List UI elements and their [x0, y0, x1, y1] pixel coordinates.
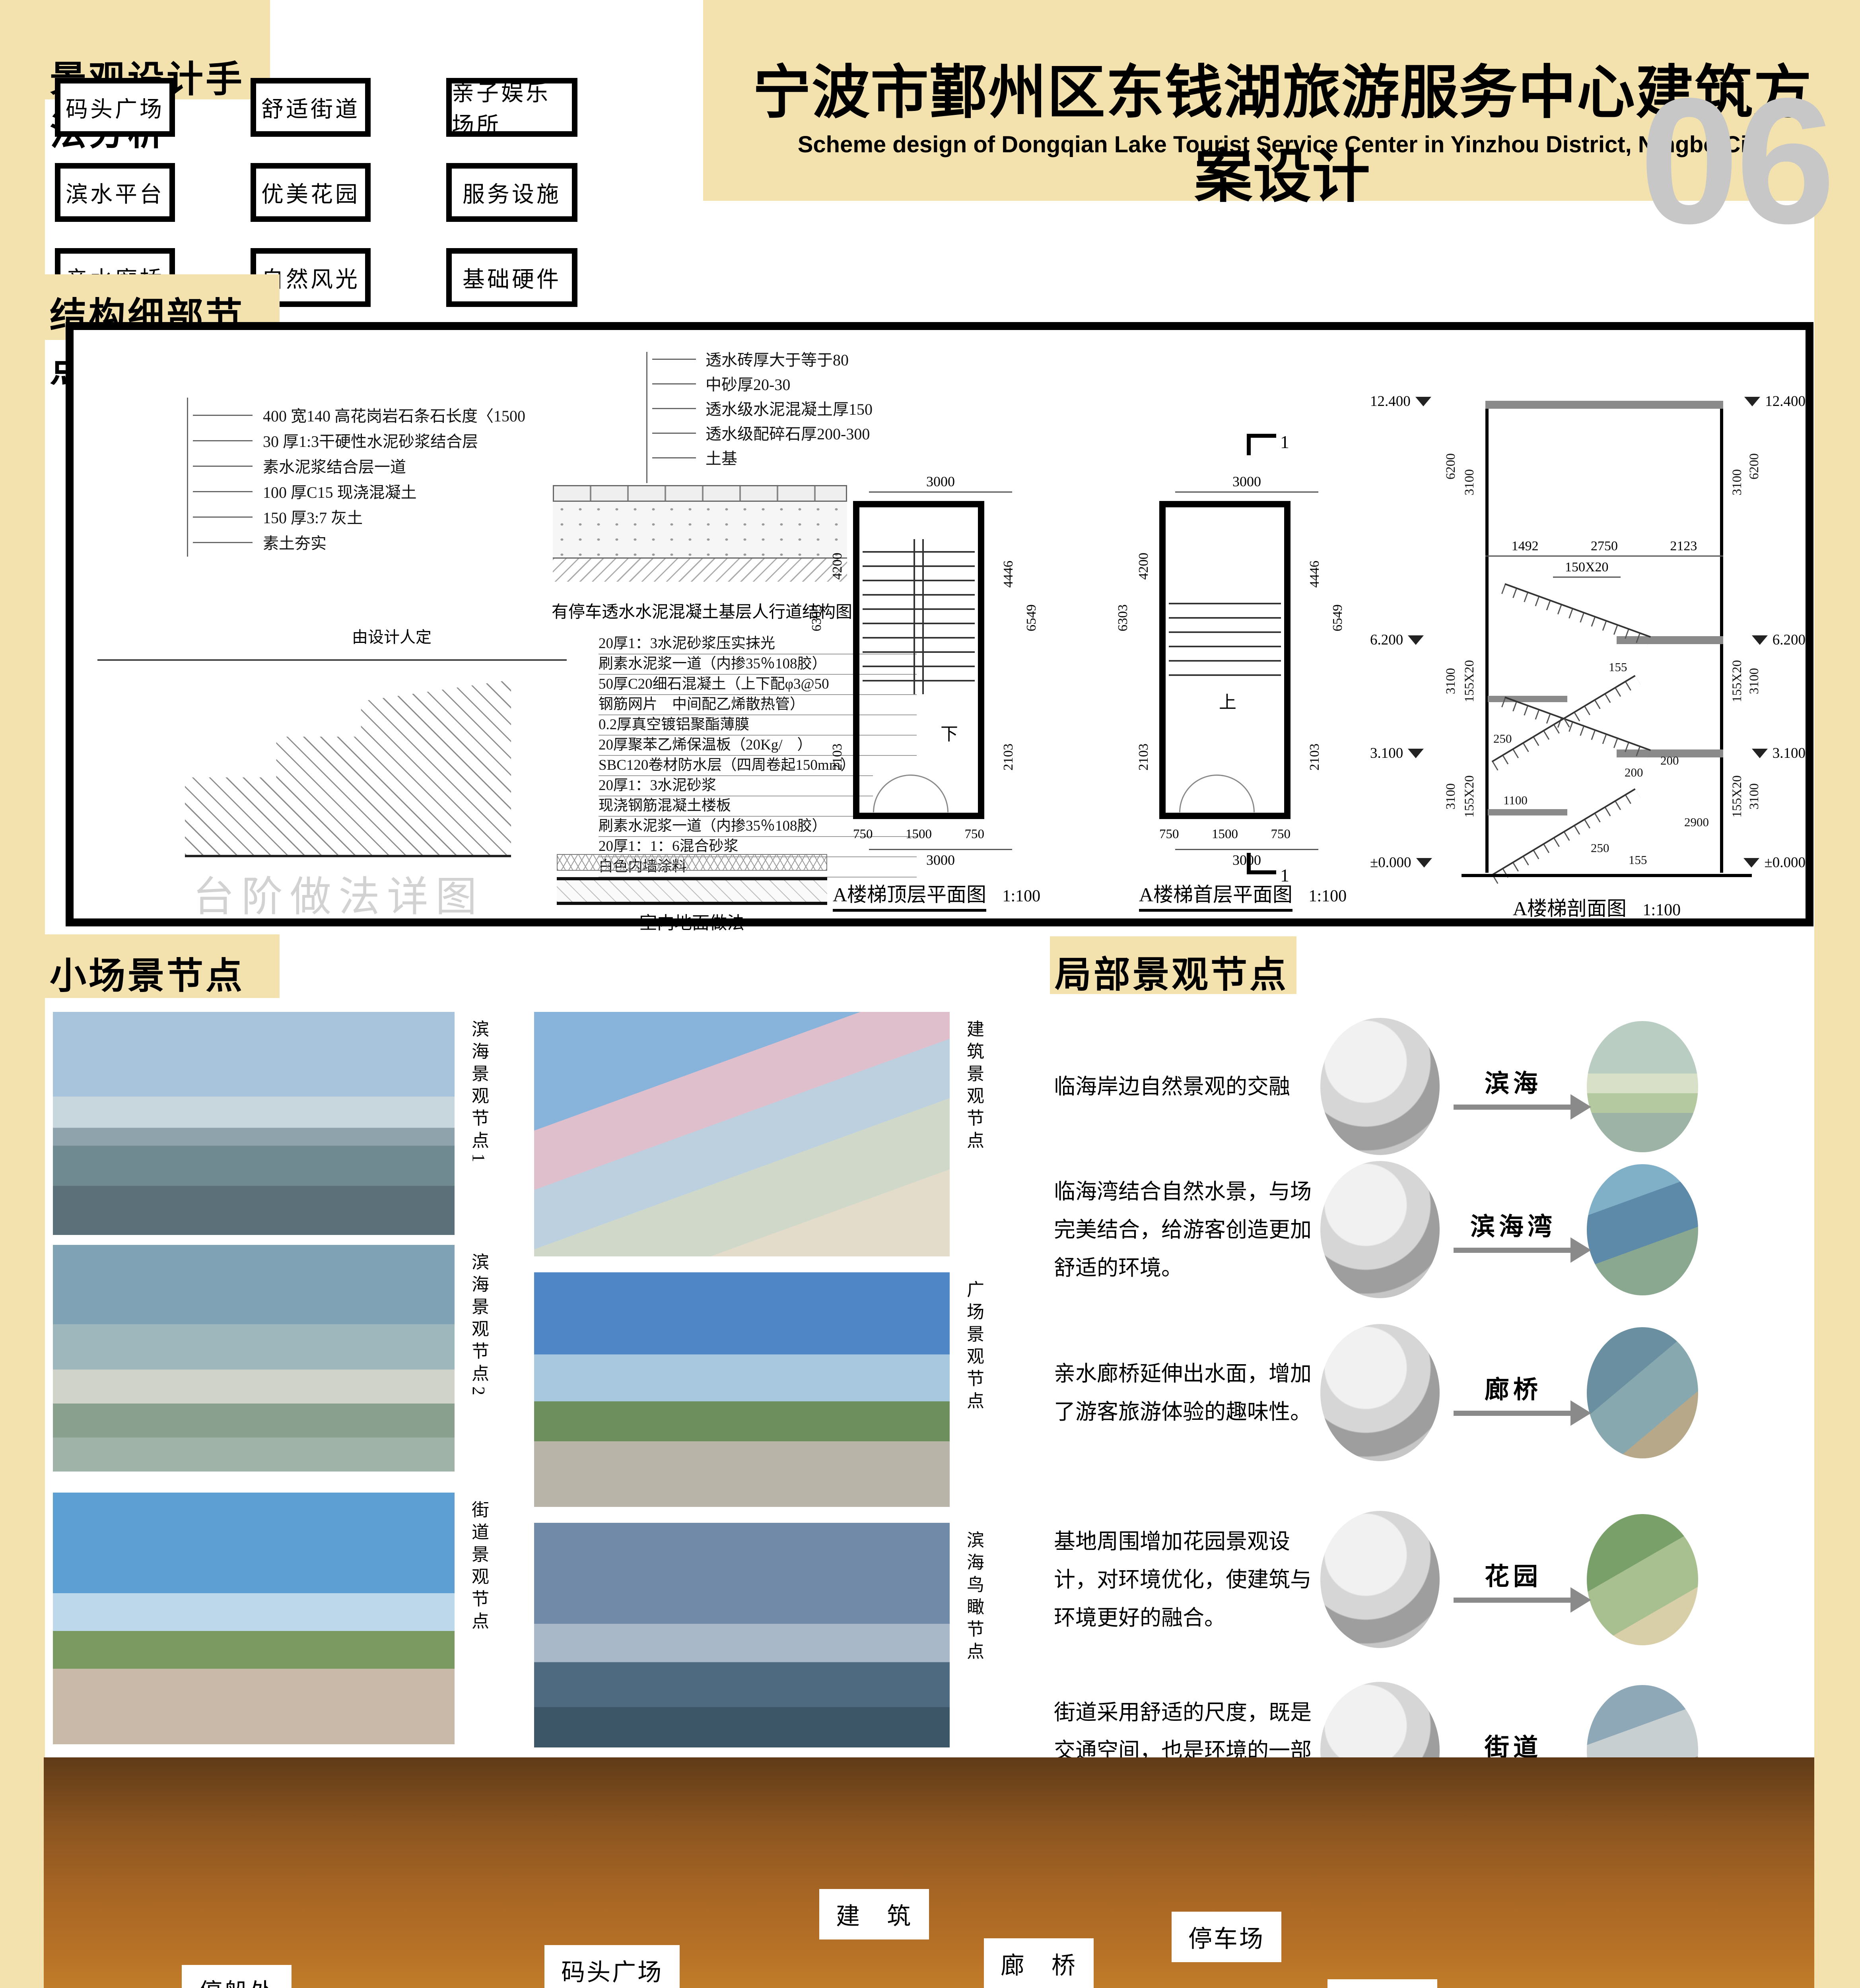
- dim-vertical: 6200: [1747, 453, 1762, 480]
- right-border-band: [1814, 0, 1860, 1988]
- map-label: 建 筑: [819, 1889, 929, 1939]
- dim-row-top: 1492 2750 2123: [1485, 539, 1723, 557]
- spec-line: 150 厚3:7 灰土: [193, 505, 525, 531]
- stair-section-drawing: 12.400 6.200 3.100 ±0.000 12.400 6.200 3…: [1370, 382, 1806, 934]
- level-mark: ±0.000: [1370, 854, 1437, 871]
- map-label: 码头广场: [544, 1945, 680, 1988]
- landing-slab: [1488, 809, 1567, 815]
- concrete-slab-layer: [557, 880, 827, 902]
- dim-door-mid: 1500: [906, 827, 932, 842]
- arrow-label: 滨海: [1448, 1063, 1579, 1099]
- subgrade-layer: [553, 559, 847, 582]
- scene-render-image: [534, 1012, 950, 1256]
- door-dims: 750 1500 750: [1159, 827, 1291, 842]
- dim-right-low: 2103: [1307, 744, 1322, 771]
- map-label: 停船处: [182, 1965, 292, 1988]
- scene-render-image: [53, 1245, 455, 1472]
- aerial-render: 停船处 码头广场 建 筑 廊 桥 停车场 下客区广场 公 园: [44, 1757, 1814, 1988]
- local-row: 临海湾结合自然水景，与场完美结合，给游客创造更加舒适的环境。 滨海湾: [1054, 1161, 1813, 1298]
- level-value: 12.400: [1370, 393, 1411, 410]
- map-label-text: 公 园: [1327, 1979, 1437, 1988]
- level-mark: 12.400: [1739, 393, 1806, 410]
- dim-right-outer: 6549: [1024, 604, 1039, 631]
- level-mark: 12.400: [1370, 393, 1436, 410]
- step-detail-drawing: [185, 680, 511, 857]
- structure-detail-panel: 400 宽140 高花岗岩石条石长度〈1500 30 厚1:3干硬性水泥砂浆结合…: [66, 322, 1813, 926]
- map-label: 公 园: [1327, 1979, 1437, 1988]
- dim-vertical: 155X20: [1462, 775, 1477, 817]
- map-label-text: 停船处: [182, 1965, 292, 1988]
- plan-detail-circle: [1320, 1324, 1440, 1461]
- dim-inner: 200: [1660, 753, 1679, 768]
- poster-page: { "page": {"number": "06"}, "header": { …: [0, 0, 1860, 1988]
- level-triangle-icon: [1744, 397, 1760, 406]
- dim-right-mid: 4446: [1307, 561, 1322, 588]
- landing-slab: [1488, 696, 1567, 702]
- local-row: 亲水廊桥延伸出水面，增加了游客旅游体验的趣味性。 廊桥: [1054, 1324, 1813, 1461]
- caption-text: A楼梯首层平面图: [1139, 883, 1292, 912]
- method-box: 码头广场: [55, 78, 175, 137]
- arrow-right-icon: [1454, 1598, 1573, 1603]
- caption-scale: 1:100: [1642, 901, 1681, 919]
- map-label: 停车场: [1172, 1912, 1281, 1962]
- scenes-heading-block: 小场景节点: [45, 934, 280, 998]
- dim-value: 1492: [1485, 539, 1565, 554]
- dim-inner: 1100: [1503, 793, 1528, 808]
- method-box-grid: 码头广场 舒适街道 亲子娱乐场所 滨水平台 优美花园 服务设施 亲水廊桥 自然风…: [55, 78, 577, 307]
- method-box: 舒适街道: [251, 78, 371, 137]
- caption-scale: 1:100: [1002, 887, 1040, 905]
- scene-label: 滨海景观节点2: [466, 1253, 491, 1400]
- method-box: 滨水平台: [55, 163, 175, 222]
- floor-caption: 室内地面做法: [557, 909, 827, 934]
- arrow-group: 花园: [1448, 1556, 1579, 1603]
- level-mark: 6.200: [1370, 631, 1429, 648]
- local-row-text: 临海湾结合自然水景，与场完美结合，给游客创造更加舒适的环境。: [1054, 1173, 1312, 1287]
- level-triangle-icon: [1743, 858, 1759, 868]
- concrete-layer: [553, 502, 847, 559]
- arrow-group: 廊桥: [1448, 1369, 1579, 1416]
- brick-layer: [553, 485, 847, 502]
- level-value: 3.100: [1773, 745, 1806, 762]
- arrow-right-icon: [1454, 1105, 1573, 1110]
- spec-line: 400 宽140 高花岗岩石条石长度〈1500: [193, 404, 525, 429]
- level-value: ±0.000: [1764, 854, 1806, 871]
- dim-door-right: 750: [1271, 827, 1291, 842]
- scene-label: 滨海景观节点1: [466, 1020, 491, 1167]
- level-value: 6.200: [1773, 631, 1806, 648]
- dim-inner: 2900: [1684, 815, 1709, 829]
- stair-first-plan: 1 3000 6303 4200 2103 4446 6549 2103 上 7…: [1116, 473, 1370, 918]
- section-wall: [1485, 404, 1489, 873]
- level-triangle-icon: [1408, 749, 1424, 758]
- roof-slab: [1485, 401, 1723, 409]
- dim-vertical: 3100: [1747, 783, 1762, 810]
- spec-line: 素土夯实: [193, 531, 525, 556]
- dim-vertical: 6200: [1444, 453, 1458, 480]
- plan-detail-circle: [1320, 1511, 1440, 1648]
- scene-render-image: [534, 1523, 950, 1747]
- dim-inner: 155: [1609, 660, 1627, 674]
- photo-detail-circle: [1587, 1327, 1698, 1458]
- scene-item: 建筑景观节点: [534, 1012, 1017, 1256]
- dim-bottom: 3000: [869, 849, 1012, 868]
- spec-line: 30 厚1:3干硬性水泥砂浆结合层: [193, 429, 525, 454]
- dim-door-right: 750: [965, 827, 985, 842]
- spec-line: 透水砖厚大于等于80: [652, 348, 873, 373]
- map-label-text: 码头广场: [544, 1945, 680, 1988]
- method-box: 服务设施: [446, 163, 577, 222]
- method-box: 基础硬件: [446, 248, 577, 307]
- plan-detail-circle: [1320, 1018, 1440, 1155]
- scene-render-image: [53, 1493, 455, 1744]
- method-box-label: 滨水平台: [66, 177, 164, 209]
- floor-assembly-drawing: [557, 854, 827, 905]
- left-border-band: [0, 0, 45, 1988]
- step-detail-watermark: 台阶做法详图: [193, 863, 484, 923]
- stairwell-outline: [1159, 501, 1291, 819]
- plan-caption: A楼梯顶层平面图 1:100: [793, 879, 1080, 907]
- direction-label: 下: [941, 720, 958, 745]
- dim-vertical: 3100: [1747, 668, 1762, 694]
- membrane-layer: [557, 871, 827, 877]
- door-dims: 750 1500 750: [853, 827, 984, 842]
- local-row: 基地周围增加花园景观设计，对环境优化，使建筑与环境更好的融合。 花园: [1054, 1511, 1813, 1648]
- dim-vertical: 3100: [1444, 668, 1458, 694]
- level-triangle-icon: [1752, 635, 1768, 645]
- method-box-label: 服务设施: [463, 177, 561, 209]
- photo-detail-circle: [1587, 1164, 1698, 1295]
- dim-vertical: 3100: [1462, 469, 1477, 495]
- dim-value: 2123: [1644, 539, 1723, 554]
- map-label-text: 停车场: [1172, 1912, 1281, 1962]
- map-label-text: 建 筑: [819, 1889, 929, 1939]
- arrow-right-icon: [1454, 1411, 1573, 1416]
- dim-left-mid: 4200: [1136, 553, 1151, 580]
- scene-item: 滨海景观节点2: [53, 1245, 522, 1472]
- scene-item: 滨海景观节点1: [53, 1012, 522, 1235]
- scene-render-image: [53, 1012, 455, 1235]
- door-arc: [1179, 775, 1255, 813]
- dim-right-outer: 6549: [1330, 604, 1345, 631]
- method-box-label: 码头广场: [66, 91, 164, 124]
- plan-caption: A楼梯首层平面图 1:100: [1100, 879, 1386, 907]
- dim-top: 3000: [869, 473, 1012, 493]
- page-number: 06: [1639, 72, 1832, 250]
- pavement-spec-list: 400 宽140 高花岗岩石条石长度〈1500 30 厚1:3干硬性水泥砂浆结合…: [193, 404, 525, 556]
- dim-right-low: 2103: [1001, 744, 1016, 771]
- arrow-label: 廊桥: [1448, 1369, 1579, 1405]
- sidewalk-spec-list: 透水砖厚大于等于80 中砂厚20-30 透水级水泥混凝土厚150 透水级配碎石厚…: [652, 348, 873, 471]
- section-mark-icon: [1247, 434, 1276, 455]
- scene-render-image: [534, 1272, 950, 1507]
- level-triangle-icon: [1752, 749, 1768, 758]
- leader-line: [646, 352, 647, 483]
- dim-left-low: 2103: [1136, 744, 1151, 771]
- scene-item: 广场景观节点: [534, 1272, 1017, 1507]
- scenes-title: 小场景节点: [45, 934, 280, 999]
- caption-text: A楼梯顶层平面图: [833, 883, 986, 912]
- arrow-label: 花园: [1448, 1556, 1579, 1592]
- dim-door-left: 750: [1159, 827, 1179, 842]
- stair-rail: [913, 539, 924, 694]
- dim-value: 2750: [1565, 539, 1644, 554]
- scene-item: 滨海鸟瞰节点: [534, 1523, 1017, 1747]
- level-mark: 3.100: [1747, 745, 1806, 762]
- slab-line: [557, 877, 827, 880]
- dim-door-left: 750: [853, 827, 873, 842]
- spec-line: 透水级配碎石厚200-300: [652, 422, 873, 447]
- dim-vertical: 3100: [1730, 469, 1745, 495]
- dim-top: 3000: [1175, 473, 1318, 493]
- spec-line: 透水级水泥混凝土厚150: [652, 397, 873, 422]
- stair-top-plan: 3000 6303 4200 2103 4446 6549 2103 下 750…: [809, 473, 1064, 918]
- arrow-group: 滨海: [1448, 1063, 1579, 1110]
- local-row-text: 基地周围增加花园景观设计，对环境优化，使建筑与环境更好的融合。: [1054, 1522, 1312, 1637]
- local-title: 局部景观节点: [1050, 936, 1296, 998]
- dim-left-low: 2103: [830, 744, 845, 771]
- local-heading-block: 局部景观节点: [1050, 936, 1296, 994]
- section-mark: 1: [1247, 431, 1289, 455]
- local-row: 临海岸边自然景观的交融 滨海: [1054, 1018, 1813, 1155]
- level-value: 3.100: [1370, 745, 1403, 762]
- level-value: 12.400: [1765, 393, 1806, 410]
- leader-line: [187, 398, 188, 557]
- dim-vertical: 155X20: [1730, 660, 1745, 702]
- sidewalk-structure-drawing: [553, 485, 847, 586]
- scene-column-middle: 建筑景观节点 广场景观节点 滨海鸟瞰节点: [534, 1006, 1017, 1747]
- local-row-text: 临海岸边自然景观的交融: [1054, 1068, 1312, 1106]
- tread-note: 150X20: [1553, 560, 1621, 578]
- caption-text: A楼梯剖面图: [1513, 897, 1627, 926]
- spec-line: 素水泥浆结合层一道: [193, 454, 525, 480]
- dim-vertical: 3100: [1444, 783, 1458, 810]
- method-box: 亲子娱乐场所: [446, 78, 577, 137]
- stairwell-outline: [853, 501, 984, 819]
- door-arc: [873, 775, 948, 813]
- scene-label: 滨海鸟瞰节点: [961, 1531, 986, 1664]
- dim-vertical: 155X20: [1462, 660, 1477, 702]
- arrow-label: 滨海湾: [1448, 1206, 1579, 1242]
- dim-inner: 250: [1591, 841, 1609, 855]
- dim-door-mid: 1500: [1212, 827, 1238, 842]
- section-mark-icon: [1247, 853, 1276, 874]
- method-box-label: 亲子娱乐场所: [452, 75, 572, 140]
- caption-scale: 1:100: [1308, 887, 1347, 905]
- designer-note: 由设计人定: [352, 624, 431, 647]
- level-triangle-icon: [1415, 397, 1431, 406]
- stair-treads: [1169, 603, 1281, 682]
- dim-vertical: 155X20: [1730, 775, 1745, 817]
- arrow-right-icon: [1454, 1248, 1573, 1253]
- dim-inner: 250: [1493, 732, 1512, 746]
- slab-line: [557, 902, 827, 905]
- level-mark: 3.100: [1370, 745, 1429, 762]
- level-mark: ±0.000: [1739, 854, 1806, 871]
- level-mark: 6.200: [1747, 631, 1806, 648]
- spec-line: 100 厚C15 现浇混凝土: [193, 480, 525, 505]
- insulation-layer: [557, 854, 827, 871]
- arrow-group: 滨海湾: [1448, 1206, 1579, 1253]
- level-value: 6.200: [1370, 631, 1403, 648]
- spec-line: 中砂厚20-30: [652, 373, 873, 397]
- level-value: ±0.000: [1370, 854, 1411, 871]
- stair-flight: [1501, 583, 1651, 647]
- map-label: 廊 桥: [984, 1938, 1094, 1988]
- dim-inner: 200: [1625, 765, 1643, 780]
- scene-column-left: 滨海景观节点1 滨海景观节点2 街道景观节点: [53, 1006, 522, 1744]
- ground-line: [1462, 874, 1752, 877]
- level-triangle-icon: [1408, 635, 1424, 645]
- section-mark-number: 1: [1280, 432, 1289, 452]
- level-triangle-icon: [1416, 858, 1432, 868]
- plan-detail-circle: [1320, 1161, 1440, 1298]
- dim-left-mid: 4200: [830, 553, 845, 580]
- method-box-label: 优美花园: [261, 177, 360, 209]
- map-label-text: 廊 桥: [984, 1938, 1094, 1988]
- method-box: 优美花园: [251, 163, 371, 222]
- scene-label: 街道景观节点: [466, 1501, 491, 1634]
- spec-line: 土基: [652, 447, 873, 471]
- method-box-label: 基础硬件: [463, 262, 561, 294]
- direction-label: 上: [1219, 688, 1236, 713]
- dim-inner: 155: [1629, 853, 1647, 867]
- method-box-label: 舒适街道: [261, 91, 360, 124]
- dimension-line: [97, 659, 567, 661]
- photo-detail-circle: [1587, 1021, 1698, 1152]
- local-rows: 临海岸边自然景观的交融 滨海 临海湾结合自然水景，与场完美结合，给游客创造更加舒…: [1054, 994, 1813, 1829]
- section-caption: A楼梯剖面图 1:100: [1458, 893, 1736, 921]
- scene-item: 街道景观节点: [53, 1493, 522, 1744]
- scene-label: 广场景观节点: [961, 1280, 986, 1414]
- dim-left-outer: 6303: [809, 604, 824, 631]
- scene-label: 建筑景观节点: [961, 1020, 986, 1153]
- photo-detail-circle: [1587, 1514, 1698, 1645]
- local-row-text: 亲水廊桥延伸出水面，增加了游客旅游体验的趣味性。: [1054, 1355, 1312, 1431]
- dim-left-outer: 6303: [1116, 604, 1131, 631]
- dim-right-mid: 4446: [1001, 561, 1016, 588]
